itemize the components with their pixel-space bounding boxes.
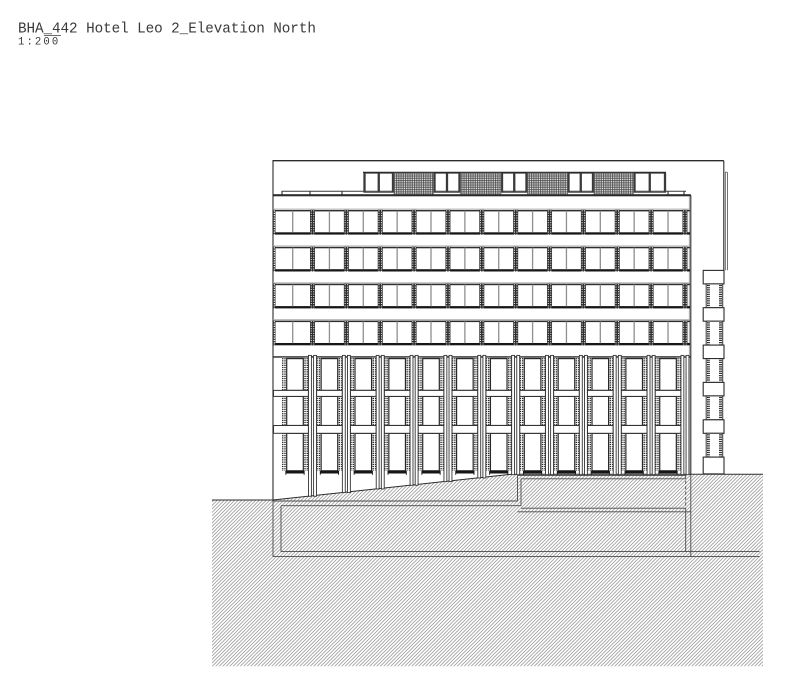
svg-text:BHA_442 Hotel Leo 2_Elevation: BHA_442 Hotel Leo 2_Elevation North <box>18 22 316 38</box>
svg-text:1:200: 1:200 <box>18 37 60 49</box>
